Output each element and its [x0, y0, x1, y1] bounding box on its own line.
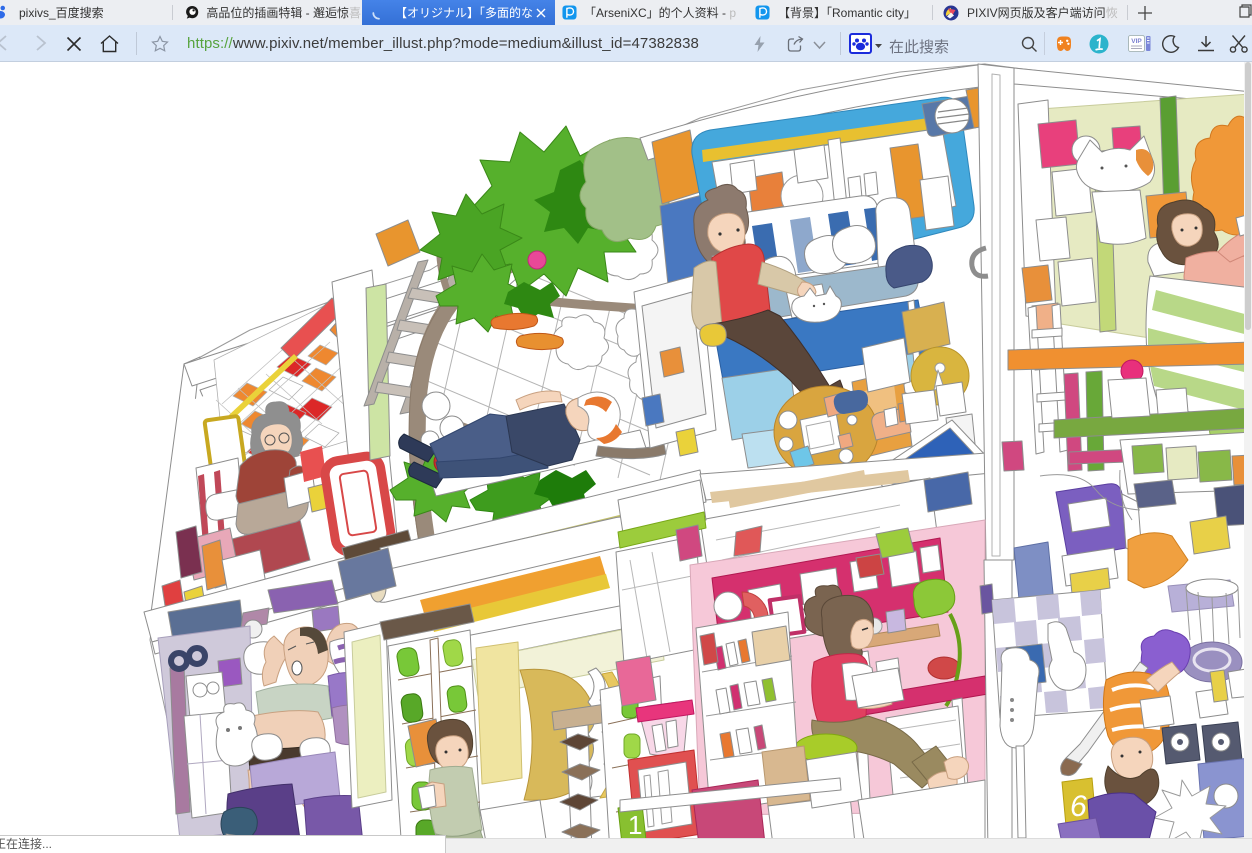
svg-text:6: 6 [1070, 790, 1087, 823]
svg-text:1: 1 [628, 810, 642, 840]
svg-text:VIP: VIP [1131, 38, 1142, 45]
